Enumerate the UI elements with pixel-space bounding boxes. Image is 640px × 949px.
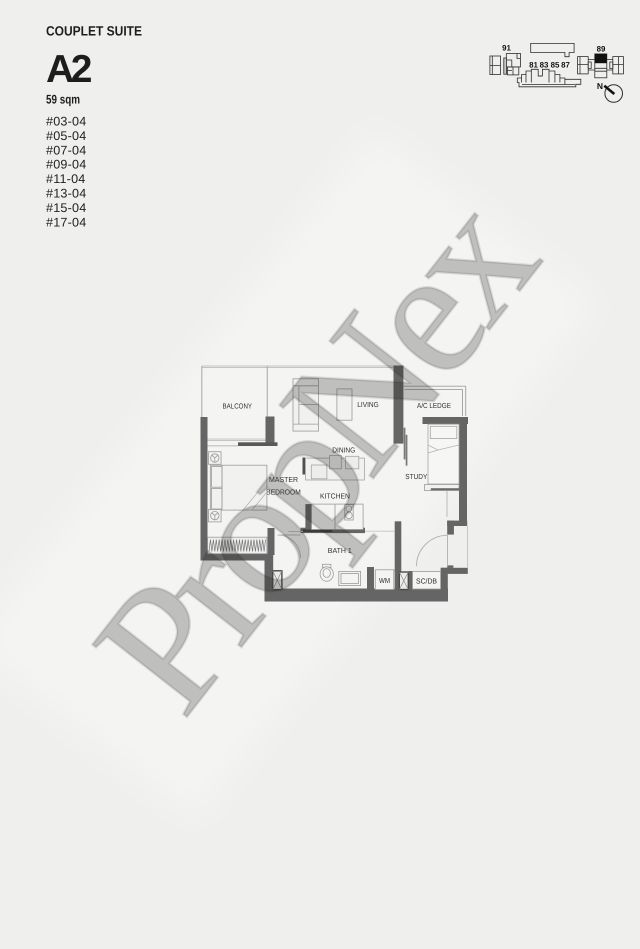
svg-text:COUPLET SUITE: COUPLET SUITE <box>46 24 142 39</box>
svg-text:81: 81 <box>529 60 538 69</box>
svg-text:59 sqm: 59 sqm <box>46 93 80 107</box>
svg-text:#05-04: #05-04 <box>46 129 86 143</box>
svg-text:85: 85 <box>551 60 560 69</box>
svg-text:N: N <box>597 81 603 91</box>
svg-text:#15-04: #15-04 <box>46 201 86 215</box>
svg-text:SC/DB: SC/DB <box>416 576 437 585</box>
svg-text:#03-04: #03-04 <box>46 115 86 129</box>
svg-text:#11-04: #11-04 <box>46 172 85 186</box>
svg-text:#17-04: #17-04 <box>46 215 86 229</box>
svg-text:87: 87 <box>561 60 570 69</box>
svg-text:#13-04: #13-04 <box>46 187 86 201</box>
svg-text:91: 91 <box>502 44 511 53</box>
svg-text:A2: A2 <box>46 48 93 91</box>
svg-text:83: 83 <box>540 60 549 69</box>
svg-text:89: 89 <box>597 44 606 53</box>
svg-text:#07-04: #07-04 <box>46 143 86 157</box>
svg-text:#09-04: #09-04 <box>46 158 86 172</box>
svg-text:WM: WM <box>379 576 390 585</box>
